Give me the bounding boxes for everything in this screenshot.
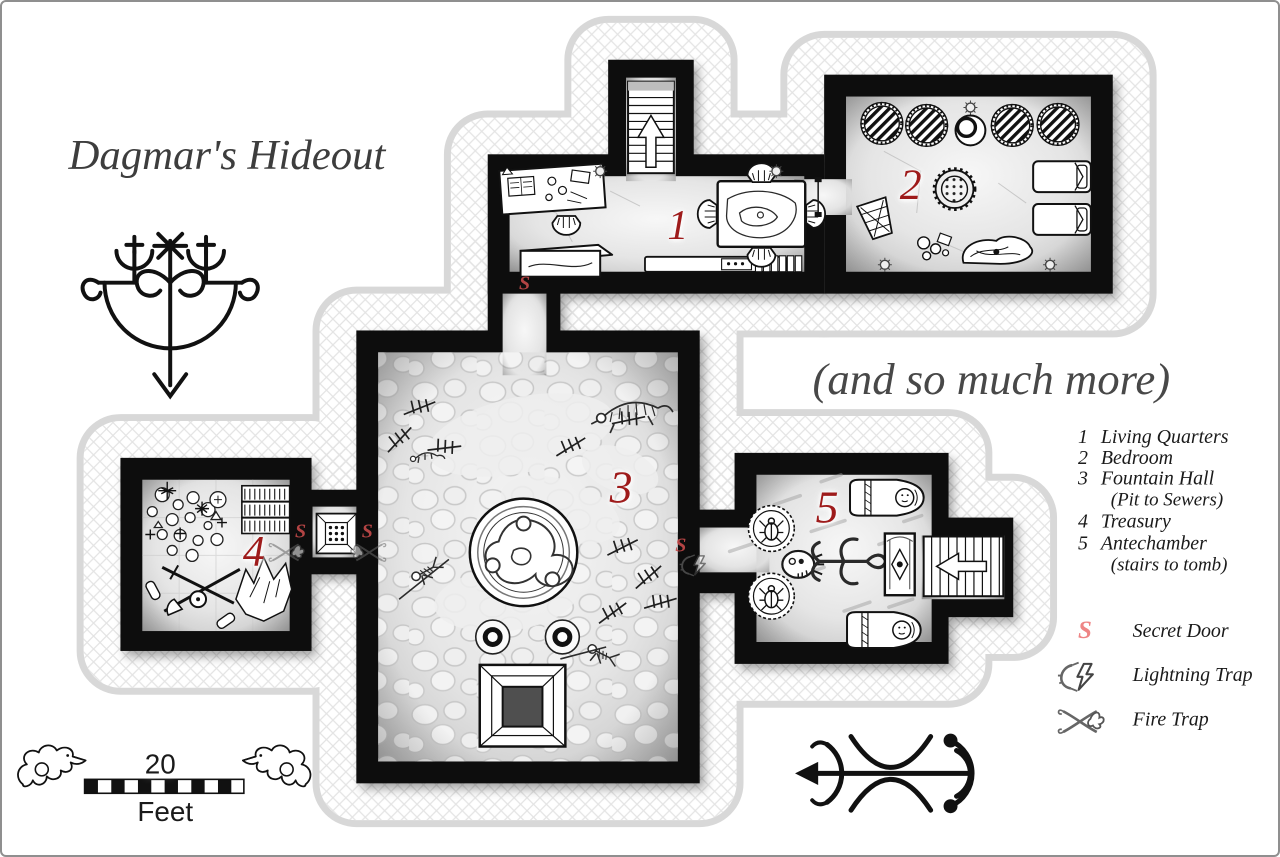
legend-room-5: 5 Antechamber (stairs to tomb) <box>1078 532 1227 575</box>
secret-door-marker: S <box>362 520 373 542</box>
torch-sconce-icon <box>878 258 892 272</box>
dragon-ornament <box>18 745 86 786</box>
map-title: Dagmar's Hideout <box>67 132 386 179</box>
grain-basket <box>906 105 948 147</box>
legend-label: Bedroom <box>1101 447 1173 469</box>
scroll-rack <box>242 486 290 534</box>
torch-sconce-icon <box>769 164 783 178</box>
bench <box>645 256 802 272</box>
legend-lightning-trap: Lightning Trap <box>1058 663 1253 691</box>
secret-door-marker: S <box>295 520 306 542</box>
bed <box>1033 204 1091 235</box>
legend-room-1: 1 Living Quarters <box>1078 426 1229 448</box>
grain-basket <box>1037 104 1079 146</box>
legend-secret-door: S Secret Door <box>1078 617 1229 644</box>
legend-label: Antechamber <box>1099 532 1207 554</box>
chair <box>747 163 775 182</box>
legend-number: 2 <box>1078 447 1088 469</box>
scarab-medallion <box>748 573 794 619</box>
fire-trap-icon <box>1059 710 1104 733</box>
room-number-1: 1 <box>667 203 688 249</box>
scale-unit: Feet <box>137 796 193 827</box>
scale-ruler <box>85 779 244 793</box>
grain-basket <box>991 105 1033 147</box>
floor-grate <box>317 514 357 554</box>
statue <box>885 534 915 596</box>
bed <box>1033 161 1091 192</box>
scale-bar: 20 Feet <box>18 745 311 827</box>
pit-to-sewers <box>480 665 566 747</box>
map-subtitle: (and so much more) <box>813 354 1171 404</box>
lightning-trap-icon <box>1058 663 1093 691</box>
legend-number: 5 <box>1078 532 1088 554</box>
torch-sconce-icon <box>963 101 977 115</box>
legend-room-2: 2 Bedroom <box>1078 447 1173 469</box>
fountain <box>470 499 577 606</box>
legend-fire-trap: Fire Trap <box>1059 709 1209 733</box>
grain-basket <box>861 103 903 145</box>
secret-door-marker: S <box>519 273 530 295</box>
legend-label: Fountain Hall <box>1100 468 1215 490</box>
scarab-medallion <box>748 506 794 552</box>
legend-label: Treasury <box>1101 511 1171 533</box>
secret-door-marker: S <box>1078 617 1092 644</box>
chair <box>747 248 775 267</box>
stairs-to-tomb <box>924 536 1004 596</box>
sarcophagus <box>847 612 921 648</box>
legend-label: Lightning Trap <box>1132 664 1253 686</box>
wooden-chest <box>521 245 613 277</box>
dining-table <box>718 181 806 247</box>
well <box>476 620 510 654</box>
room-number-4: 4 <box>243 527 265 575</box>
secret-door-marker: S <box>675 534 686 556</box>
legend-number: 1 <box>1078 426 1088 448</box>
legend-label: Living Quarters <box>1100 426 1229 448</box>
legend-label: Secret Door <box>1133 620 1229 642</box>
room-number-5: 5 <box>816 482 839 533</box>
legend-number: 3 <box>1077 468 1088 490</box>
legend: 1 Living Quarters 2 Bedroom 3 Fountain H… <box>1058 426 1253 733</box>
veve-sigil <box>83 234 258 396</box>
room-number-3: 3 <box>609 462 633 513</box>
legend-number: 4 <box>1078 511 1088 533</box>
legend-room-3: 3 Fountain Hall (Pit to Sewers) <box>1077 468 1223 511</box>
scale-value: 20 <box>145 748 176 779</box>
legend-label: Fire Trap <box>1132 709 1209 731</box>
legend-note: (Pit to Sewers) <box>1111 490 1223 511</box>
room-number-2: 2 <box>900 161 922 209</box>
desk-chair <box>552 216 580 235</box>
well <box>545 620 579 654</box>
chair <box>698 200 717 228</box>
sarcophagus <box>850 480 924 516</box>
pot <box>956 115 986 145</box>
dungeon-map: 1 2 <box>2 2 1278 855</box>
legend-room-4: 4 Treasury <box>1078 511 1171 533</box>
dragon-ornament <box>243 745 311 786</box>
map-page: 1 2 <box>0 0 1280 857</box>
compass-sigil <box>797 734 972 814</box>
stairs-up <box>628 82 674 174</box>
legend-note: (stairs to tomb) <box>1111 554 1228 575</box>
torch-sconce-icon <box>593 164 607 178</box>
torch-sconce-icon <box>1043 258 1057 272</box>
